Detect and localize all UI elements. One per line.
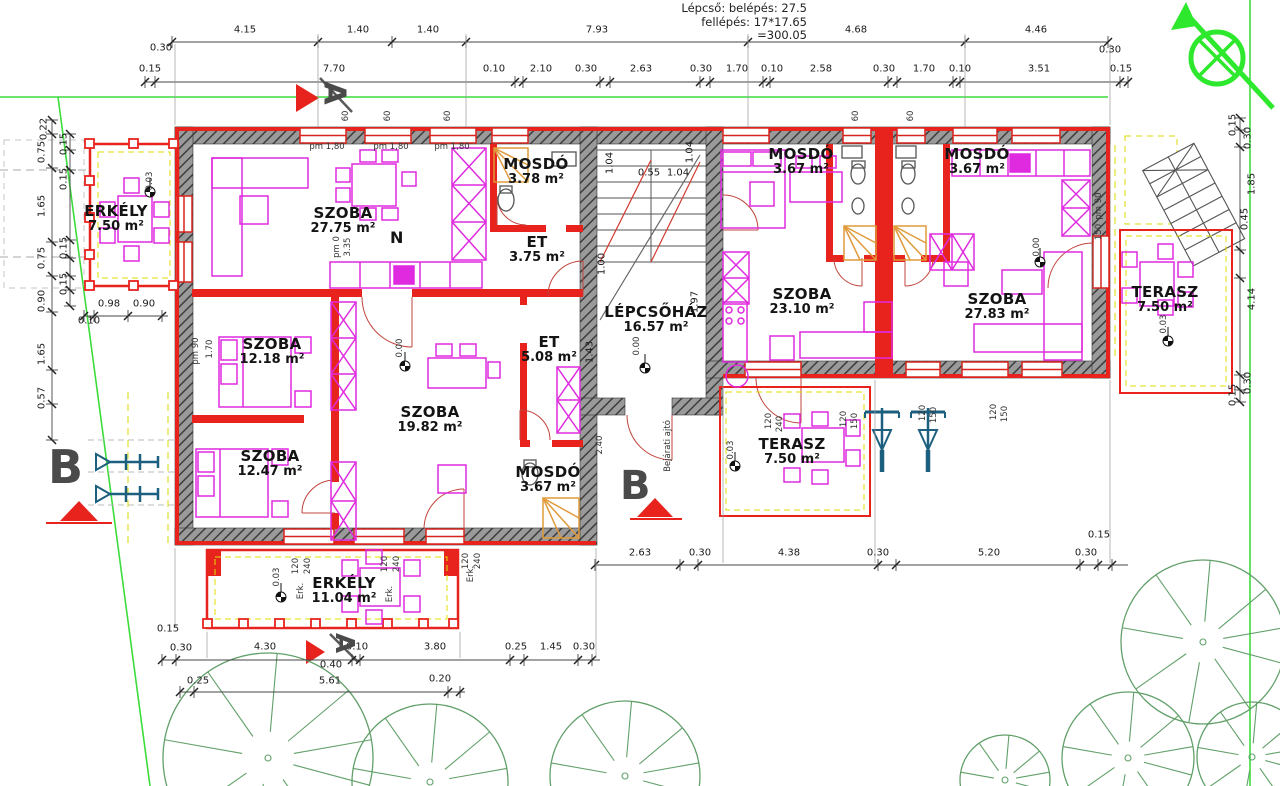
dimension-label: 4.14 (1247, 288, 1258, 310)
room-area: 3.67 m² (768, 163, 833, 178)
dimension-label: 1.85 (1247, 173, 1258, 195)
annotation-label: pm 1,80 (434, 142, 469, 152)
annotation-label: 0.03 (1159, 315, 1169, 334)
dimension-label: 0.57 (37, 387, 48, 409)
annotation-label: 0.00 (632, 337, 642, 356)
annotation-label: 120 (764, 413, 774, 429)
stair-note-line: =300.05 (585, 29, 807, 43)
dimension-label: 0.30 (1243, 127, 1254, 149)
room-name: MOSDÓ (944, 146, 1009, 163)
dimension-label: 0.30 (873, 64, 895, 75)
annotation-label: 60 (383, 111, 393, 122)
dimension-label: 0.45 (1240, 208, 1251, 230)
room-area: 27.75 m² (311, 222, 376, 237)
dimension-label: 4.38 (778, 548, 800, 559)
room-area: 19.82 m² (398, 421, 463, 436)
dimension-label: 0.10 (949, 64, 971, 75)
dimension-label: 0.25 (187, 676, 209, 687)
annotation-label: 60 (341, 111, 351, 122)
room-name: MOSDÓ (515, 464, 580, 481)
room-area: 16.57 m² (604, 321, 707, 336)
dimension-label: 0.15 (59, 273, 70, 295)
dimension-label: 0.75 (37, 247, 48, 269)
annotation-label: 60 (851, 111, 861, 122)
room-area: 5.08 m² (521, 351, 577, 366)
annotation-label: 150 (929, 407, 939, 423)
dimension-label: 1.00 (597, 253, 608, 275)
dimension-label: 0.30 (690, 64, 712, 75)
room-name: ERKÉLY (84, 203, 148, 220)
dimension-label: 0.15 (1110, 64, 1132, 75)
dimension-label: 2.63 (629, 548, 651, 559)
dimension-label: 1.70 (726, 64, 748, 75)
annotation-label: pm 0 (332, 236, 342, 258)
dimension-label: 3.80 (424, 642, 446, 653)
dimension-label: 0.25 (505, 642, 527, 653)
room-label: SZOBA12.47 m² (238, 448, 303, 479)
dimension-label: 0.15 (139, 64, 161, 75)
room-name: ET (509, 234, 565, 251)
annotation-label: pm 90 (1094, 192, 1104, 219)
dimension-label: 0.10 (761, 64, 783, 75)
annotation-label: 120 (291, 558, 301, 574)
room-label: MOSDÓ3.67 m² (944, 146, 1009, 177)
room-name: SZOBA (238, 448, 303, 465)
room-label: TERASZ7.50 m² (1131, 284, 1198, 315)
room-area: 3.67 m² (515, 481, 580, 496)
annotation-label: 0.03 (272, 568, 282, 587)
room-area: 23.10 m² (770, 303, 835, 318)
dimension-label: 0.30 (1075, 548, 1097, 559)
room-label: ET3.75 m² (509, 234, 565, 265)
room-label: MOSDÓ3.67 m² (515, 464, 580, 495)
room-area: 3.67 m² (944, 163, 1009, 178)
dimension-label: 0.98 (98, 299, 120, 310)
annotation-label: 0.03 (726, 441, 736, 460)
room-name: SZOBA (398, 404, 463, 421)
dimension-label: 3.51 (1028, 64, 1050, 75)
room-name: SZOBA (311, 205, 376, 222)
dimension-label: 1.43 (585, 341, 596, 363)
dimension-label: 0.15 (1228, 114, 1239, 136)
room-label: MOSDÓ3.67 m² (768, 146, 833, 177)
dimension-label: 1.65 (37, 195, 48, 217)
room-area: 7.50 m² (84, 220, 148, 235)
dimension-label: 0.90 (133, 299, 155, 310)
dimension-label: 4.68 (845, 25, 867, 36)
room-name: TERASZ (1131, 284, 1198, 301)
dimension-label: 0.40 (320, 660, 342, 671)
dimension-label: 7.93 (586, 25, 608, 36)
room-label: TERASZ7.50 m² (758, 436, 825, 467)
annotation-label: 0.03 (145, 172, 155, 191)
dimension-label: 2.58 (810, 64, 832, 75)
dimension-label: 0.15 (157, 624, 179, 635)
dimension-label: 0.22 (39, 118, 50, 140)
annotation-label: 120 (989, 404, 999, 420)
dimension-label: 0.75 (37, 141, 48, 163)
section-marker-label: A (319, 81, 349, 104)
annotation-label: 150 (850, 413, 860, 429)
dimension-label: 1.40 (347, 25, 369, 36)
annotation-label: 120 (380, 556, 390, 572)
dimension-label: 4.46 (1025, 25, 1047, 36)
annotation-label: 3.35 (343, 238, 353, 257)
room-label: SZOBA19.82 m² (398, 404, 463, 435)
dimension-label: 0.30 (1243, 372, 1254, 394)
annotation-label: 2.40 (595, 436, 605, 455)
stair-calculation-note: Lépcső: belépés: 27.5 fellépés: 17*17.65… (585, 2, 807, 43)
annotation-label: 0.00 (1032, 238, 1042, 257)
annotation-label: 240 (473, 553, 483, 569)
annotation-label: Bejárati ajtó (663, 420, 673, 472)
annotation-label: 150 (1094, 224, 1104, 240)
room-area: 27.83 m² (965, 308, 1030, 323)
dimension-label: 0.15 (59, 133, 70, 155)
room-label: ET5.08 m² (521, 334, 577, 365)
dimension-label: 0.30 (573, 642, 595, 653)
room-name: SZOBA (240, 336, 305, 353)
dimension-label: 0.30 (575, 64, 597, 75)
room-area: 12.47 m² (238, 465, 303, 480)
room-name: ERKÉLY (312, 575, 377, 592)
room-name: SZOBA (965, 291, 1030, 308)
room-name: TERASZ (758, 436, 825, 453)
room-label: SZOBA27.83 m² (965, 291, 1030, 322)
stair-note-line: Lépcső: belépés: 27.5 (585, 2, 807, 16)
labels-layer: Lépcső: belépés: 27.5 fellépés: 17*17.65… (0, 0, 1280, 786)
room-label: SZOBA27.75 m² (311, 205, 376, 236)
annotation-label: 120 (918, 405, 928, 421)
annotation-label: 60 (906, 111, 916, 122)
room-label: ERKÉLY11.04 m² (312, 575, 377, 606)
room-name: MOSDÓ (503, 156, 568, 173)
room-area: 11.04 m² (312, 592, 377, 607)
annotation-label: 60 (443, 111, 453, 122)
room-name: SZOBA (770, 286, 835, 303)
annotation-label: 240 (303, 558, 313, 574)
dimension-label: 2.10 (530, 64, 552, 75)
dimension-label: 7.70 (323, 64, 345, 75)
dimension-label: 0.90 (37, 290, 48, 312)
dimension-label: 1.65 (37, 343, 48, 365)
annotation-label: 240 (392, 556, 402, 572)
dimension-label: 0.20 (429, 674, 451, 685)
room-label: SZOBA23.10 m² (770, 286, 835, 317)
stair-note-line: fellépés: 17*17.65 (585, 16, 807, 30)
section-marker-label: B (620, 466, 651, 506)
room-area: 3.75 m² (509, 251, 565, 266)
dimension-label: 2.63 (630, 64, 652, 75)
room-name: MOSDÓ (768, 146, 833, 163)
room-label: ERKÉLY7.50 m² (84, 203, 148, 234)
dimension-label: 4.30 (254, 642, 276, 653)
room-name: ET (521, 334, 577, 351)
annotation-label: Erk. (385, 586, 395, 603)
dimension-label: 1.04 (605, 152, 616, 174)
annotation-label: pm 1,80 (373, 142, 408, 152)
dimension-label: 0.55 (638, 168, 660, 179)
annotation-label: pm 1,80 (309, 142, 344, 152)
dimension-label: 0.10 (483, 64, 505, 75)
dimension-label: 0.30 (150, 43, 172, 54)
dimension-label: 1.40 (417, 25, 439, 36)
room-area: 12.18 m² (240, 353, 305, 368)
dimension-label: 0.30 (867, 548, 889, 559)
room-label: SZOBA12.18 m² (240, 336, 305, 367)
dimension-label: 1.04 (667, 168, 689, 179)
annotation-label: 0.00 (395, 339, 405, 358)
annotation-label: 120 (839, 411, 849, 427)
dimension-label: 5.20 (978, 548, 1000, 559)
room-area: 3.78 m² (503, 173, 568, 188)
dimension-label: 0.30 (689, 548, 711, 559)
annotation-label: 1.70 (205, 340, 215, 359)
dimension-label: 0.15 (1088, 530, 1110, 541)
annotation-label: 120 (461, 553, 471, 569)
dimension-label: 0.15 (59, 168, 70, 190)
dimension-label: 1.04 (685, 141, 696, 163)
dimension-label: 1.45 (540, 642, 562, 653)
dimension-label: 0.30 (1099, 45, 1121, 56)
dimension-label: 0.30 (170, 643, 192, 654)
dimension-label: 0.10 (78, 316, 100, 327)
room-area: 7.50 m² (1131, 301, 1198, 316)
dimension-label: 5.61 (319, 676, 341, 687)
section-marker-label: B (48, 444, 83, 490)
annotation-label: pm 90 (191, 337, 201, 364)
annotation-label: Erk. (296, 583, 306, 600)
annotation-label: 150 (1000, 406, 1010, 422)
floor-plan-canvas: Lépcső: belépés: 27.5 fellépés: 17*17.65… (0, 0, 1280, 786)
north-letter: N (390, 228, 403, 247)
dimension-label: 0.15 (59, 237, 70, 259)
room-label: MOSDÓ3.78 m² (503, 156, 568, 187)
dimension-label: 0.15 (1228, 384, 1239, 406)
dimension-label: 4.15 (234, 25, 256, 36)
section-marker-label: A (331, 633, 357, 653)
dimension-label: 1.70 (913, 64, 935, 75)
annotation-label: 240 (775, 416, 785, 432)
dimension-label: 1.97 (690, 291, 701, 313)
room-area: 7.50 m² (758, 453, 825, 468)
